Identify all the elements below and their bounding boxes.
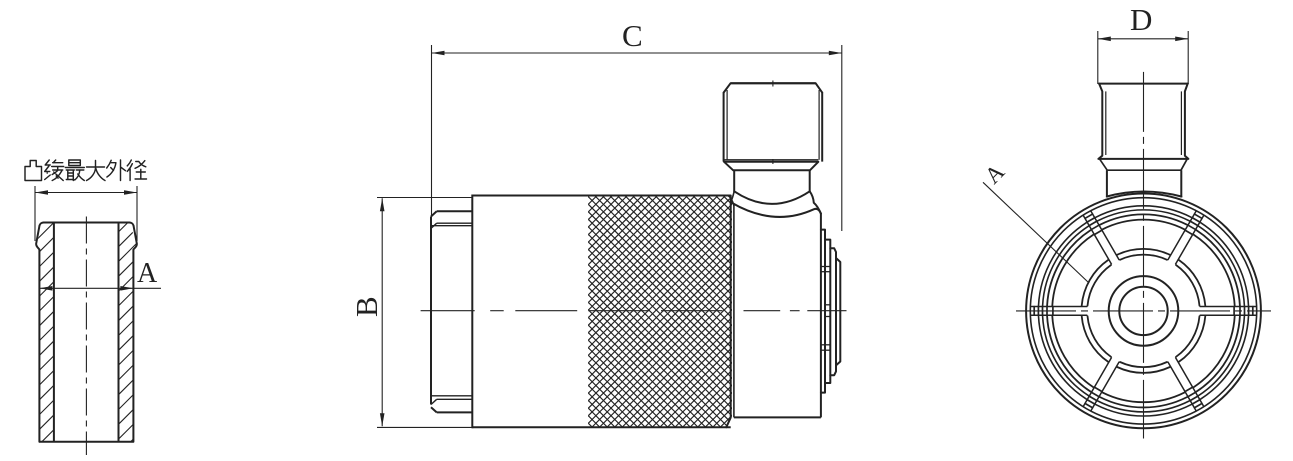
svg-text:D: D bbox=[1130, 2, 1152, 37]
svg-text:A: A bbox=[137, 258, 158, 289]
svg-text:B: B bbox=[349, 296, 384, 317]
svg-text:C: C bbox=[622, 18, 643, 53]
